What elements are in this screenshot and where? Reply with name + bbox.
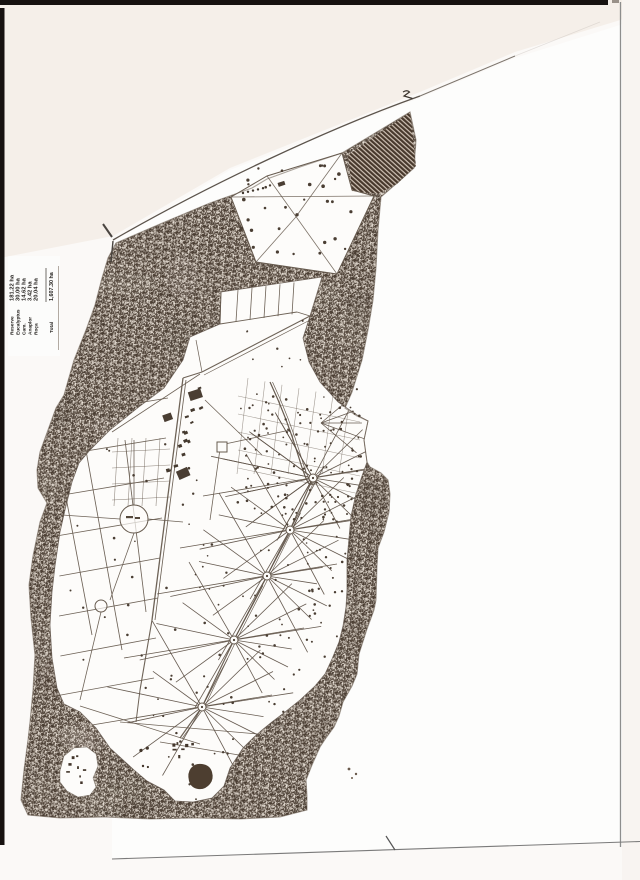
svg-text:Total: Total bbox=[49, 322, 55, 333]
svg-text:Roça: Roça bbox=[34, 323, 40, 335]
svg-text:Cam.: Cam. bbox=[22, 323, 28, 335]
svg-text:20.04 ha: 20.04 ha bbox=[34, 277, 40, 301]
svg-text:Eucalyptus: Eucalyptus bbox=[16, 309, 22, 335]
svg-text:Anaplor: Anaplor bbox=[28, 317, 34, 335]
svg-text:1,607.30 ha: 1,607.30 ha bbox=[49, 271, 55, 301]
svg-text:Reserve: Reserve bbox=[10, 316, 16, 335]
